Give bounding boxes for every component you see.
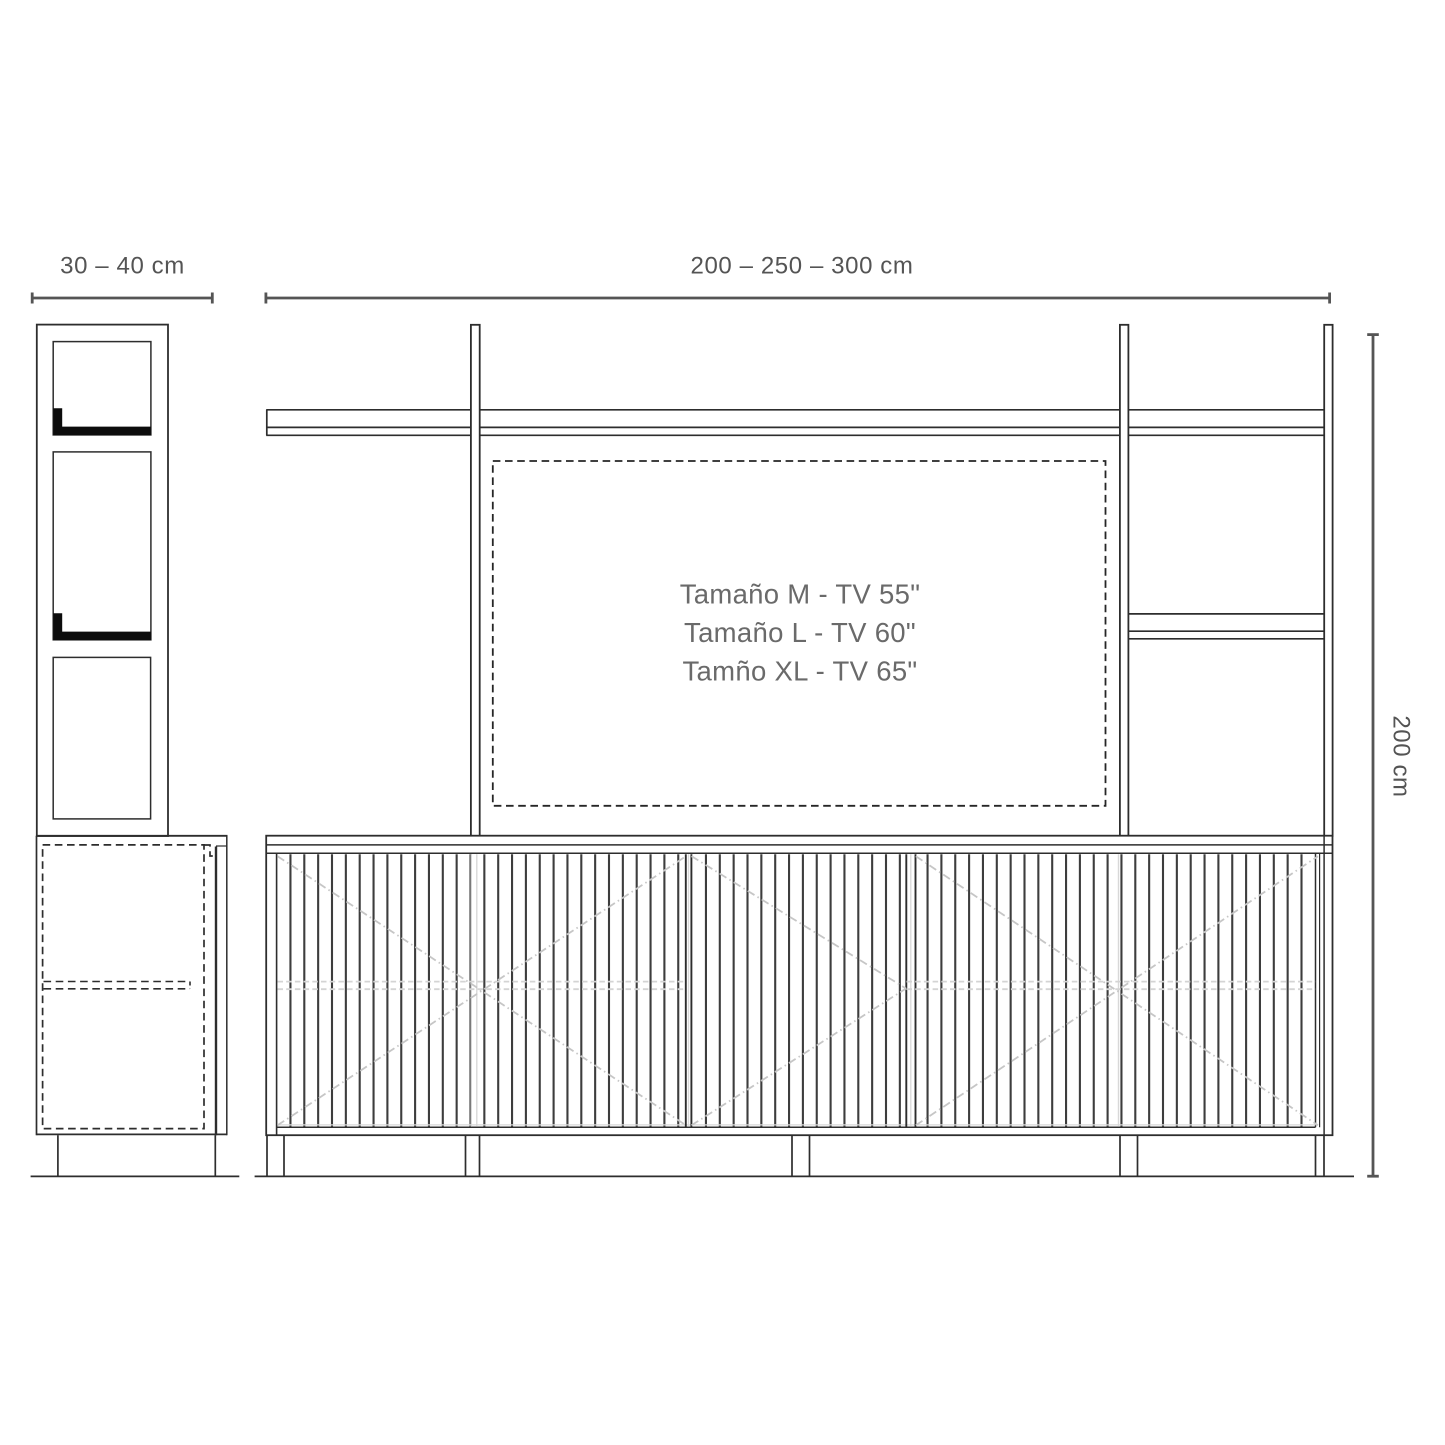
svg-text:Tamaño M - TV 55": Tamaño M - TV 55" <box>680 579 921 610</box>
svg-text:Tamño XL - TV 65": Tamño XL - TV 65" <box>683 656 918 687</box>
svg-text:30 – 40 cm: 30 – 40 cm <box>60 253 185 280</box>
svg-text:200 cm: 200 cm <box>1388 715 1415 797</box>
svg-text:200 – 250 – 300 cm: 200 – 250 – 300 cm <box>691 253 914 280</box>
svg-text:Tamaño L - TV 60": Tamaño L - TV 60" <box>684 617 916 648</box>
